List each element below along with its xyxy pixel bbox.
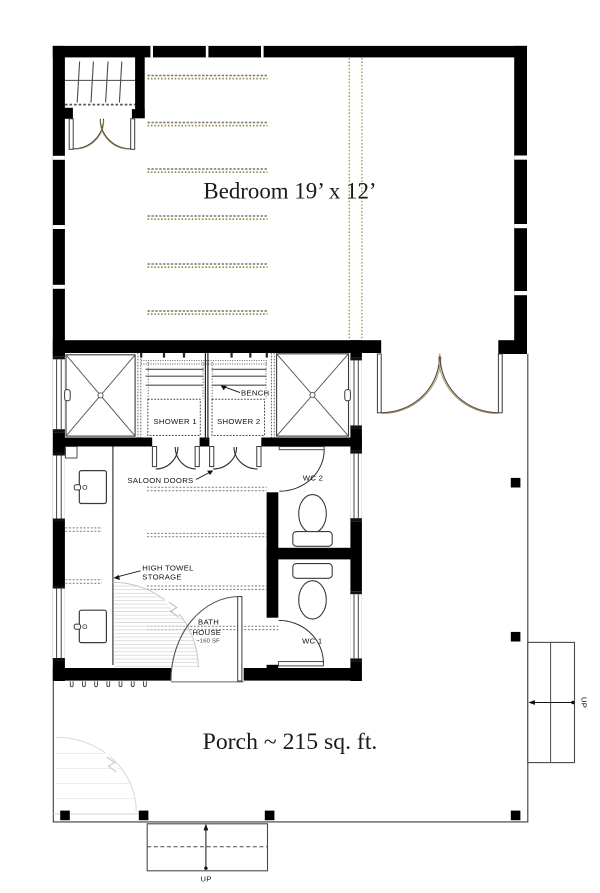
svg-text:UP: UP (200, 875, 211, 884)
svg-text:HIGH TOWEL: HIGH TOWEL (142, 564, 194, 573)
svg-text:BATH: BATH (198, 618, 219, 627)
svg-text:SALOON DOORS: SALOON DOORS (128, 476, 194, 485)
svg-text:SHOWER 1: SHOWER 1 (153, 417, 196, 426)
svg-text:SHOWER 2: SHOWER 2 (217, 417, 260, 426)
svg-text:WC 1: WC 1 (302, 637, 322, 646)
svg-text:UP: UP (580, 697, 589, 708)
svg-text:Porch ~ 215 sq. ft.: Porch ~ 215 sq. ft. (203, 729, 378, 755)
svg-text:~160 SF: ~160 SF (196, 638, 220, 644)
svg-text:HOUSE: HOUSE (192, 628, 221, 637)
svg-text:WC 2: WC 2 (303, 474, 323, 483)
svg-text:Bedroom 19’ x 12’: Bedroom 19’ x 12’ (203, 179, 376, 204)
svg-text:BENCH: BENCH (241, 389, 269, 398)
svg-text:STORAGE: STORAGE (142, 573, 182, 582)
